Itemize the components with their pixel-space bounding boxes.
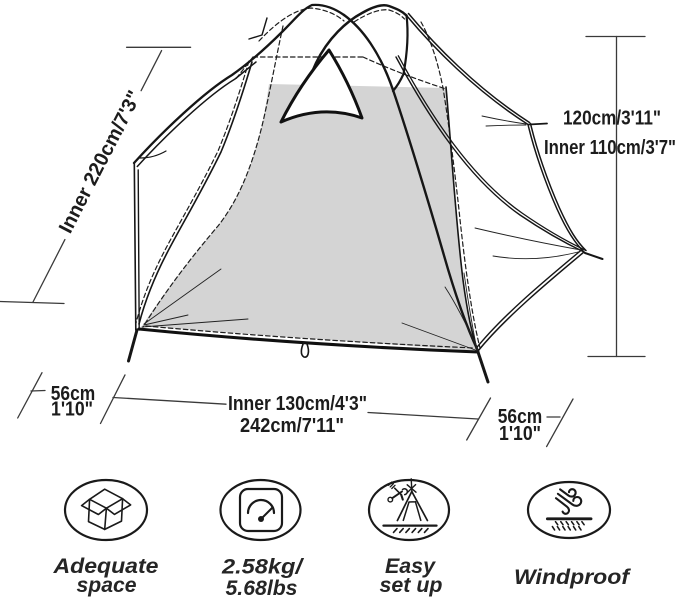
svg-text:Inner 110cm/3'7": Inner 110cm/3'7" [544, 137, 676, 159]
svg-text:5.68lbs: 5.68lbs [226, 577, 298, 599]
svg-text:Windproof: Windproof [514, 566, 631, 589]
svg-text:120cm/3'11": 120cm/3'11" [563, 108, 661, 130]
svg-text:2.58kg/: 2.58kg/ [221, 556, 305, 579]
svg-text:1'10": 1'10" [51, 399, 93, 421]
svg-text:1'10": 1'10" [499, 423, 541, 445]
svg-text:242cm/7'11": 242cm/7'11" [240, 415, 344, 437]
svg-text:Inner 130cm/4'3": Inner 130cm/4'3" [228, 393, 367, 415]
svg-text:space: space [77, 574, 137, 597]
svg-text:set up: set up [380, 574, 443, 597]
svg-text:Inner 220cm/7'3": Inner 220cm/7'3" [55, 87, 146, 237]
